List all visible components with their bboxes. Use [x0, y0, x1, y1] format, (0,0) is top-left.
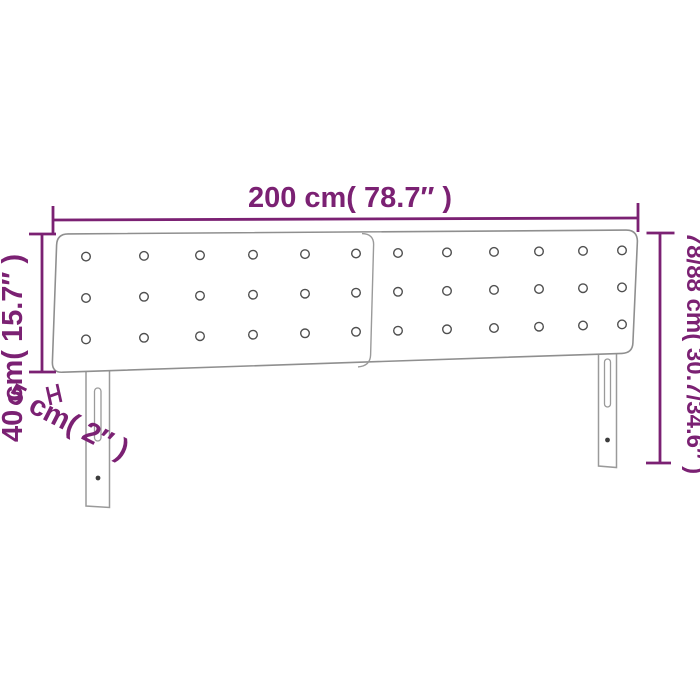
left-leg-screw — [96, 476, 101, 481]
tufting-button — [82, 294, 91, 303]
tufting-button — [196, 251, 205, 260]
headboard-dimension-diagram: 200 cm( 78.7″ ) 40 cm( 15.7″ ) 78/88 cm(… — [0, 0, 700, 700]
tufting-button — [82, 335, 91, 344]
tufting-button — [443, 325, 452, 334]
tufting-button — [490, 324, 499, 333]
tufting-button — [394, 288, 403, 297]
tufting-button — [196, 332, 205, 341]
tufting-button — [249, 250, 258, 259]
width-dimension: 200 cm( 78.7″ ) — [53, 182, 638, 235]
tufting-button — [535, 247, 544, 256]
tufting-button — [618, 246, 627, 255]
headboard-outline — [52, 230, 637, 372]
tufting-button — [579, 321, 588, 330]
leg-details — [95, 359, 611, 480]
tufting-button — [618, 320, 627, 329]
tufting-button — [140, 334, 149, 343]
panel-height-dimension-line — [29, 234, 56, 372]
tufting-button — [301, 329, 310, 338]
tufting-button — [249, 330, 258, 339]
tufting-button — [618, 283, 627, 292]
tufting-button — [301, 289, 310, 298]
tufting-button — [140, 252, 149, 261]
tufting-button — [443, 287, 452, 296]
tufting-button — [394, 249, 403, 258]
tufting-button — [196, 291, 205, 300]
total-height-dimension: 78/88 cm( 30.7/34.6″ ) — [646, 232, 700, 474]
right-leg-slot — [605, 359, 611, 407]
tufting-button — [301, 250, 310, 259]
tufting-button — [535, 322, 544, 331]
tufting-button — [490, 286, 499, 295]
width-dimension-label: 200 cm( 78.7″ ) — [248, 182, 452, 214]
tufting-button — [579, 247, 588, 256]
tufting-button — [394, 326, 403, 335]
tufting-button — [82, 252, 91, 261]
total-height-dimension-label: 78/88 cm( 30.7/34.6″ ) — [681, 232, 700, 474]
tufting-button — [352, 249, 361, 258]
tufting-button — [140, 293, 149, 302]
tufting-button — [579, 284, 588, 293]
diagram-canvas: 200 cm( 78.7″ ) 40 cm( 15.7″ ) 78/88 cm(… — [0, 0, 700, 700]
total-height-dimension-line — [646, 233, 675, 463]
tufting-button — [249, 290, 258, 299]
tufting-button — [352, 328, 361, 337]
tufting-button — [490, 248, 499, 257]
right-leg-screw — [605, 438, 610, 443]
tufting-button — [443, 248, 452, 257]
tufting-button — [535, 285, 544, 294]
tufting-button — [352, 288, 361, 297]
